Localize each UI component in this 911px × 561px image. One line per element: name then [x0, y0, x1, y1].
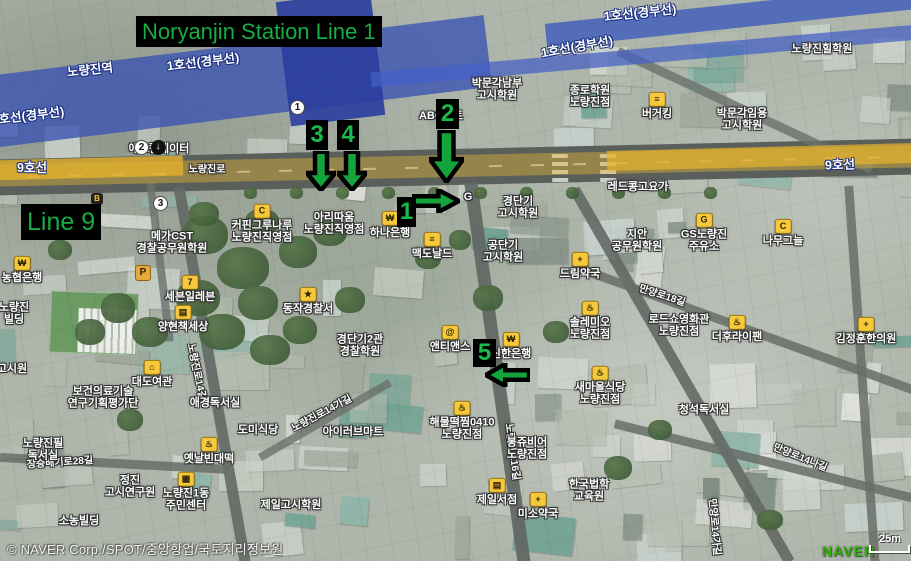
tree-canopy	[217, 247, 269, 289]
label-text: 제일고시학원	[261, 499, 322, 511]
map-attribution: © NAVER Corp./SPOT/중앙항업/국토지리정보원	[7, 539, 283, 558]
poi-label: 보건의료기술 연구기획평가단	[68, 386, 139, 411]
scale-bar	[869, 545, 910, 553]
building-block	[16, 503, 59, 528]
scale-label: 25m	[879, 533, 901, 545]
building-block	[77, 257, 135, 276]
building-block	[97, 213, 157, 230]
label-text: 도미식당	[238, 424, 278, 436]
street-tree	[290, 187, 303, 199]
building-block	[860, 96, 891, 125]
burger-icon: ≡	[423, 232, 440, 247]
tree-canopy	[250, 335, 290, 365]
tree-canopy	[648, 420, 672, 440]
tree-canopy	[189, 202, 219, 226]
station-exit-badge: 2	[134, 140, 149, 155]
marker-4-arrow-down-icon	[337, 151, 367, 191]
tree-canopy	[238, 286, 278, 320]
poi-label: 정진 고시연구원	[105, 475, 156, 500]
label-text: 나무그늘	[763, 235, 803, 247]
station-exit-badge: 3	[153, 196, 168, 211]
police-icon: ★	[299, 287, 316, 302]
building-block	[622, 513, 642, 540]
building-block	[420, 464, 447, 487]
building-block	[551, 462, 585, 492]
street-tree	[520, 187, 533, 199]
pharmacy-icon: +	[529, 492, 546, 507]
marker-4-number: 4	[337, 120, 359, 150]
street-tree	[382, 187, 395, 199]
parking-icon: P	[135, 265, 151, 281]
marker-5-number: 5	[473, 339, 496, 367]
tree-canopy	[283, 316, 317, 344]
building-block	[632, 383, 656, 405]
pretzel-icon: @	[441, 325, 458, 340]
label-text: 하나은행	[370, 227, 410, 239]
tree-canopy	[132, 317, 168, 347]
building-block	[537, 357, 588, 390]
label-text: 정진 고시연구원	[105, 475, 156, 500]
tree-canopy	[473, 285, 503, 311]
tree-canopy	[117, 409, 143, 431]
street-tree	[704, 187, 717, 199]
food-icon: ♨	[200, 437, 217, 452]
tree-canopy	[245, 209, 279, 235]
building-block	[873, 335, 911, 348]
poi-label: 경단기2관 경찰학원	[337, 334, 384, 359]
building-block	[695, 499, 753, 529]
tree-canopy	[449, 230, 471, 250]
annotation-line9: Line 9	[21, 204, 101, 240]
poi-label: ≡버거킹	[642, 92, 672, 120]
building-block	[0, 329, 16, 367]
poi-label: 소농빌딩	[59, 515, 99, 527]
tree-canopy	[199, 314, 245, 350]
building-block	[581, 91, 607, 117]
building-block	[431, 415, 458, 430]
station-exit-badge: 1	[290, 100, 305, 115]
food-icon: ♨	[581, 301, 598, 316]
marker-2-number: 2	[436, 99, 459, 129]
poi-label: 노량진 빌딩	[0, 302, 29, 327]
tree-canopy	[75, 319, 105, 345]
poi-label: GGS노량진 주유소	[681, 213, 727, 254]
street-tree	[244, 187, 257, 199]
poi-label: 도미식당	[238, 424, 278, 436]
building-block	[506, 238, 568, 264]
label-text: 소농빌딩	[59, 515, 99, 527]
marker-1-arrow-right-icon	[412, 189, 460, 213]
label-text: 버거킹	[642, 108, 672, 120]
building-block	[663, 517, 683, 551]
label-text: 경단기2관 경찰학원	[337, 334, 384, 359]
street-tree	[658, 187, 671, 199]
street-tree	[566, 187, 579, 199]
label-text: 보건의료기술 연구기획평가단	[68, 386, 139, 411]
road	[0, 452, 230, 473]
building-block	[636, 242, 662, 274]
poi-label: ♨솔레미오 노량진점	[570, 301, 610, 342]
building-block	[530, 201, 546, 218]
marker-1-number: 1	[397, 197, 416, 227]
tree-canopy	[313, 218, 347, 246]
bank-icon: ₩	[13, 256, 30, 271]
escalator-icon: ↓	[151, 140, 166, 155]
tree-canopy	[335, 287, 365, 313]
building-block	[896, 411, 911, 423]
burger-icon: ≡	[649, 92, 666, 107]
building-block	[339, 495, 369, 525]
food-icon: ♨	[453, 401, 470, 416]
coffee-icon: C	[774, 219, 791, 234]
bank-icon: ₩	[502, 332, 519, 347]
street-tree	[612, 187, 625, 199]
building-block	[304, 450, 357, 467]
building-block	[340, 361, 365, 396]
building-block	[455, 516, 470, 560]
building-block	[792, 388, 834, 425]
marker-2-arrow-down-icon	[429, 130, 464, 183]
building-block	[43, 358, 67, 387]
label-text: 노량진 빌딩	[0, 302, 29, 327]
tree-canopy	[101, 293, 135, 323]
marker-3-number: 3	[306, 120, 328, 150]
label-text: 대도여관	[132, 376, 172, 388]
tree-canopy	[48, 240, 72, 260]
building-block	[667, 221, 686, 233]
tree-canopy	[543, 321, 569, 343]
label-text: 솔레미오 노량진점	[570, 317, 610, 342]
building-block	[373, 267, 424, 298]
building-block	[709, 363, 756, 408]
marker-3-arrow-down-icon	[306, 151, 336, 191]
label-text: GS노량진 주유소	[681, 229, 727, 254]
tree-canopy	[176, 280, 220, 316]
building-block	[434, 348, 457, 365]
tree-canopy	[604, 456, 632, 480]
tree-canopy	[757, 510, 783, 530]
street-tree	[474, 187, 487, 199]
tree-canopy	[415, 247, 441, 269]
gas-icon: G	[695, 213, 712, 228]
annotation-title-line1: Noryanjin Station Line 1	[136, 16, 382, 47]
building-block	[782, 477, 820, 511]
poi-label: C나무그늘	[763, 219, 803, 247]
building-block	[555, 409, 607, 446]
naver-logo: NAVER	[822, 543, 875, 559]
building-block	[183, 471, 211, 501]
satellite-map[interactable]: 노량진역1호선(경부선)1호선(경부선)1호선(경부선)1호선(경부선)9호선9…	[0, 0, 911, 561]
tree-canopy	[279, 236, 317, 268]
poi-label: 제일고시학원	[261, 499, 322, 511]
